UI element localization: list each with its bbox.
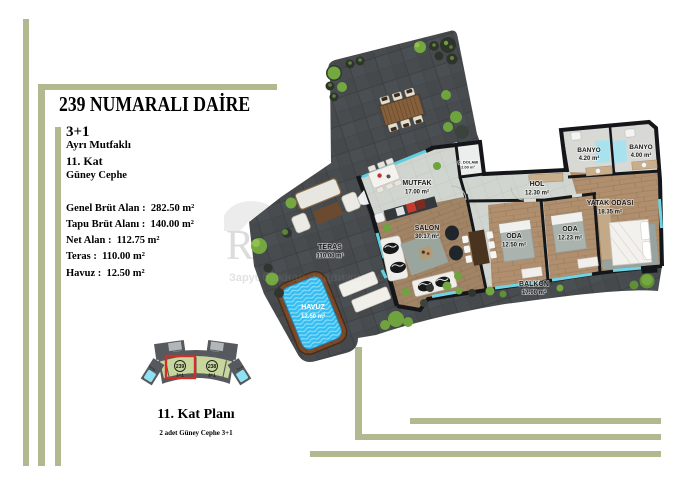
svg-text:YATAK ODASI: YATAK ODASI bbox=[587, 200, 634, 207]
svg-text:2.00 m²: 2.00 m² bbox=[461, 165, 475, 170]
svg-text:3+1: 3+1 bbox=[176, 373, 184, 378]
svg-text:18.35 m²: 18.35 m² bbox=[598, 209, 622, 216]
svg-text:4.20 m²: 4.20 m² bbox=[579, 155, 600, 162]
svg-text:12.50 m²: 12.50 m² bbox=[502, 242, 526, 249]
svg-text:бежная недвижимость: бежная недвижимость bbox=[262, 270, 397, 284]
svg-text:12.50 m²: 12.50 m² bbox=[301, 313, 325, 320]
svg-text:239: 239 bbox=[176, 364, 185, 370]
svg-text:SALON: SALON bbox=[415, 225, 440, 232]
svg-text:HAVUZ: HAVUZ bbox=[301, 304, 325, 311]
svg-text:BANYO: BANYO bbox=[577, 147, 600, 154]
svg-text:ODA: ODA bbox=[506, 233, 522, 240]
svg-text:ODA: ODA bbox=[562, 226, 578, 233]
svg-text:BALKON: BALKON bbox=[519, 281, 549, 288]
svg-text:4.00 m²: 4.00 m² bbox=[631, 152, 652, 159]
svg-text:110.00 m²: 110.00 m² bbox=[316, 253, 343, 260]
svg-text:238: 238 bbox=[208, 364, 217, 370]
svg-text:12.23 m²: 12.23 m² bbox=[558, 235, 582, 242]
svg-text:HOL: HOL bbox=[530, 181, 546, 188]
svg-text:17.00 m²: 17.00 m² bbox=[522, 289, 546, 296]
svg-text:TERAS: TERAS bbox=[318, 244, 342, 251]
svg-text:12.30 m²: 12.30 m² bbox=[525, 190, 549, 197]
svg-text:17.00 m²: 17.00 m² bbox=[405, 189, 429, 196]
svg-text:30.17 m²: 30.17 m² bbox=[415, 233, 439, 240]
svg-text:BANYO: BANYO bbox=[629, 144, 652, 151]
svg-text:3+1: 3+1 bbox=[208, 373, 216, 378]
svg-text:MUTFAK: MUTFAK bbox=[402, 180, 431, 187]
